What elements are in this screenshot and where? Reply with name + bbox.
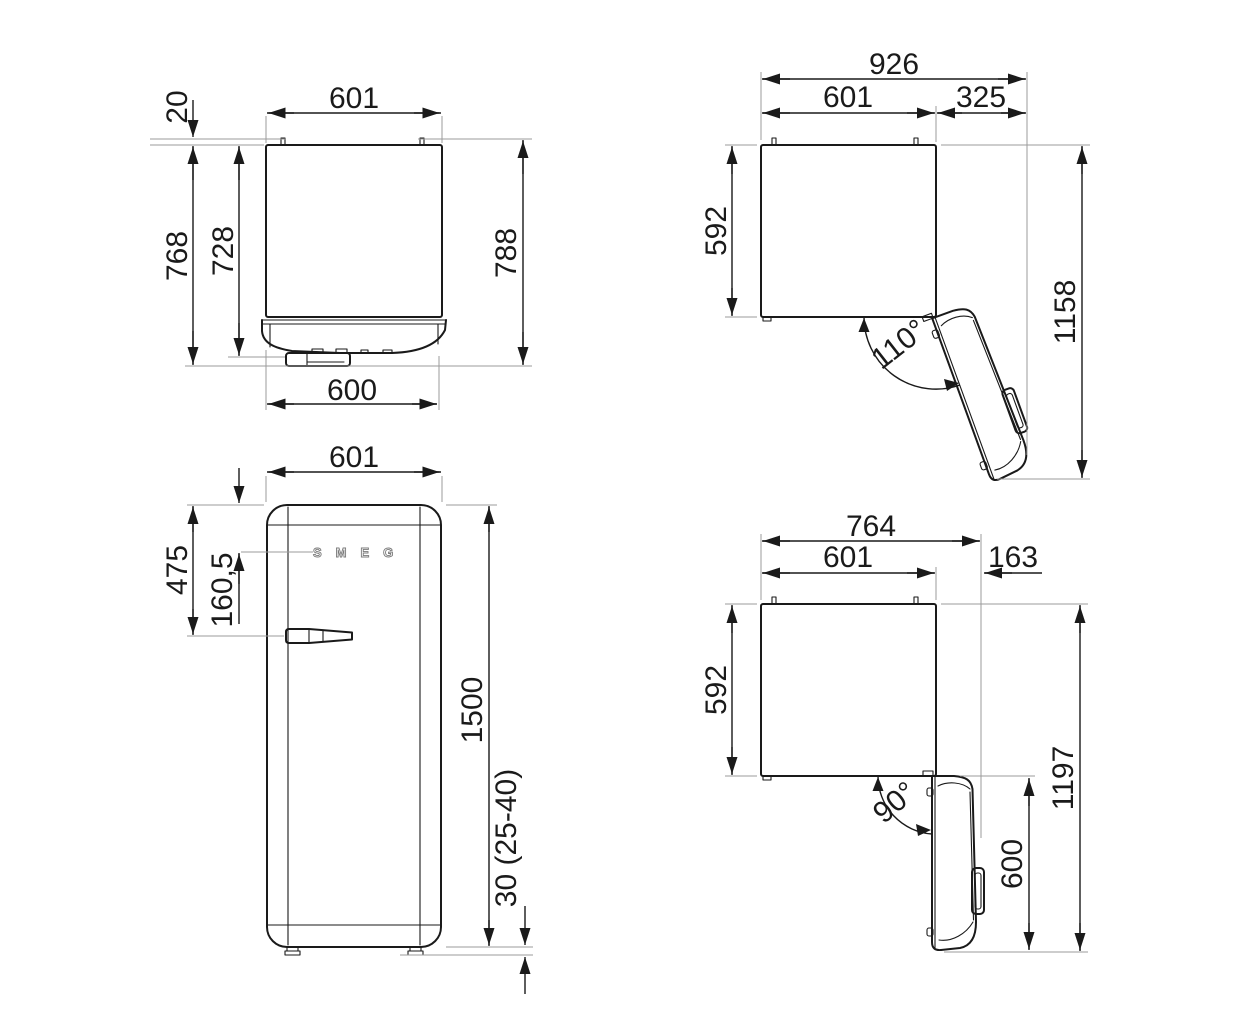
fridge-foot (285, 947, 300, 955)
wall-spacer-pin (914, 597, 918, 604)
view-top-closed: 601 20 768 728 788 600 (150, 82, 532, 410)
dim-label-total-depth: 1158 (1049, 280, 1082, 345)
dim-logo-from-top: 160,5 (206, 468, 239, 628)
dim-label-door-clearance: 325 (956, 81, 1006, 114)
dim-width-top: 601 (267, 82, 441, 115)
dim-label-cabinet-depth: 592 (700, 665, 733, 715)
dim-depth-door: 768 (161, 146, 194, 365)
dim-label-width: 601 (329, 441, 379, 474)
dim-total-depth: 1158 (1049, 146, 1082, 478)
door-open-110 (922, 296, 1041, 485)
cabinet-top-outline (761, 138, 936, 321)
dim-label-total-depth: 1197 (1047, 746, 1080, 811)
wall-spacer-pin (772, 138, 776, 145)
dim-label-width-bottom: 600 (327, 374, 377, 407)
dim-label-depth-door: 768 (161, 231, 194, 281)
dim-label-cabinet-depth: 592 (700, 206, 733, 256)
dim-cabinet-depth: 592 (700, 146, 733, 316)
dim-label-depth-body: 728 (207, 226, 240, 276)
brand-logo: SMEG (313, 545, 407, 560)
dimension-drawing-page: 601 20 768 728 788 600 (0, 0, 1260, 1020)
door-open-90 (923, 771, 984, 950)
dim-label-height: 1500 (456, 677, 489, 744)
dim-label-door-angle: 110° (865, 313, 932, 376)
fridge-front-outline (267, 505, 441, 955)
dim-label-door-depth: 600 (996, 839, 1029, 889)
dim-cabinet-width: 601 (762, 81, 935, 114)
dim-wall-spacer: 20 (161, 90, 194, 137)
dim-label-logo-from-top: 160,5 (206, 552, 239, 627)
dim-handle-from-top: 475 (161, 506, 194, 635)
dim-feet-height: 30 (25-40) (490, 769, 525, 994)
dim-cabinet-width: 601 (762, 541, 935, 574)
dim-door-clearance: 163 (984, 541, 1042, 574)
dim-label-width-top: 601 (329, 82, 379, 115)
dimension-drawing: 601 20 768 728 788 600 (0, 0, 1260, 1020)
door-handle-front (286, 629, 352, 643)
dim-total-depth: 1197 (1047, 605, 1080, 951)
extension-lines (725, 534, 1088, 952)
dim-door-clearance: 325 (937, 81, 1026, 114)
dim-width: 601 (267, 441, 441, 474)
wall-spacer-pin (772, 597, 776, 604)
view-top-open-110: 110° 926 601 325 (700, 48, 1090, 485)
dim-label-handle-from-top: 475 (161, 545, 194, 595)
dim-label-total-width: 764 (846, 510, 896, 543)
dim-label-feet-height: 30 (25-40) (490, 769, 523, 907)
dim-label-door-clearance: 163 (988, 541, 1038, 574)
wall-spacer-pin (914, 138, 918, 145)
dim-label-cabinet-width: 601 (823, 541, 873, 574)
cabinet-top-outline (761, 597, 936, 780)
extension-lines (725, 72, 1090, 479)
dim-label-total-width: 926 (869, 48, 919, 81)
dim-total-width: 926 (762, 48, 1026, 81)
dim-label-wall-spacer: 20 (161, 90, 194, 123)
view-front: SMEG 601 475 (161, 441, 533, 994)
dim-width-bottom: 600 (267, 374, 437, 407)
dim-cabinet-depth: 592 (700, 605, 733, 775)
dim-height: 1500 (456, 506, 489, 946)
door-swing-arc: 90° (867, 775, 932, 836)
fridge-foot (408, 947, 423, 955)
dim-depth-total: 788 (490, 140, 523, 365)
dim-label-door-angle: 90° (867, 775, 923, 829)
dim-label-cabinet-width: 601 (823, 81, 873, 114)
view-top-open-90: 90° 764 601 163 (700, 510, 1088, 952)
dim-label-depth-total: 788 (490, 228, 523, 278)
dim-door-depth: 600 (996, 778, 1029, 950)
door-handle-top (286, 353, 350, 366)
dim-total-width: 764 (762, 510, 980, 543)
door-top-closed (262, 320, 446, 366)
cabinet-top-outline (266, 138, 442, 317)
dim-depth-body: 728 (207, 146, 240, 356)
